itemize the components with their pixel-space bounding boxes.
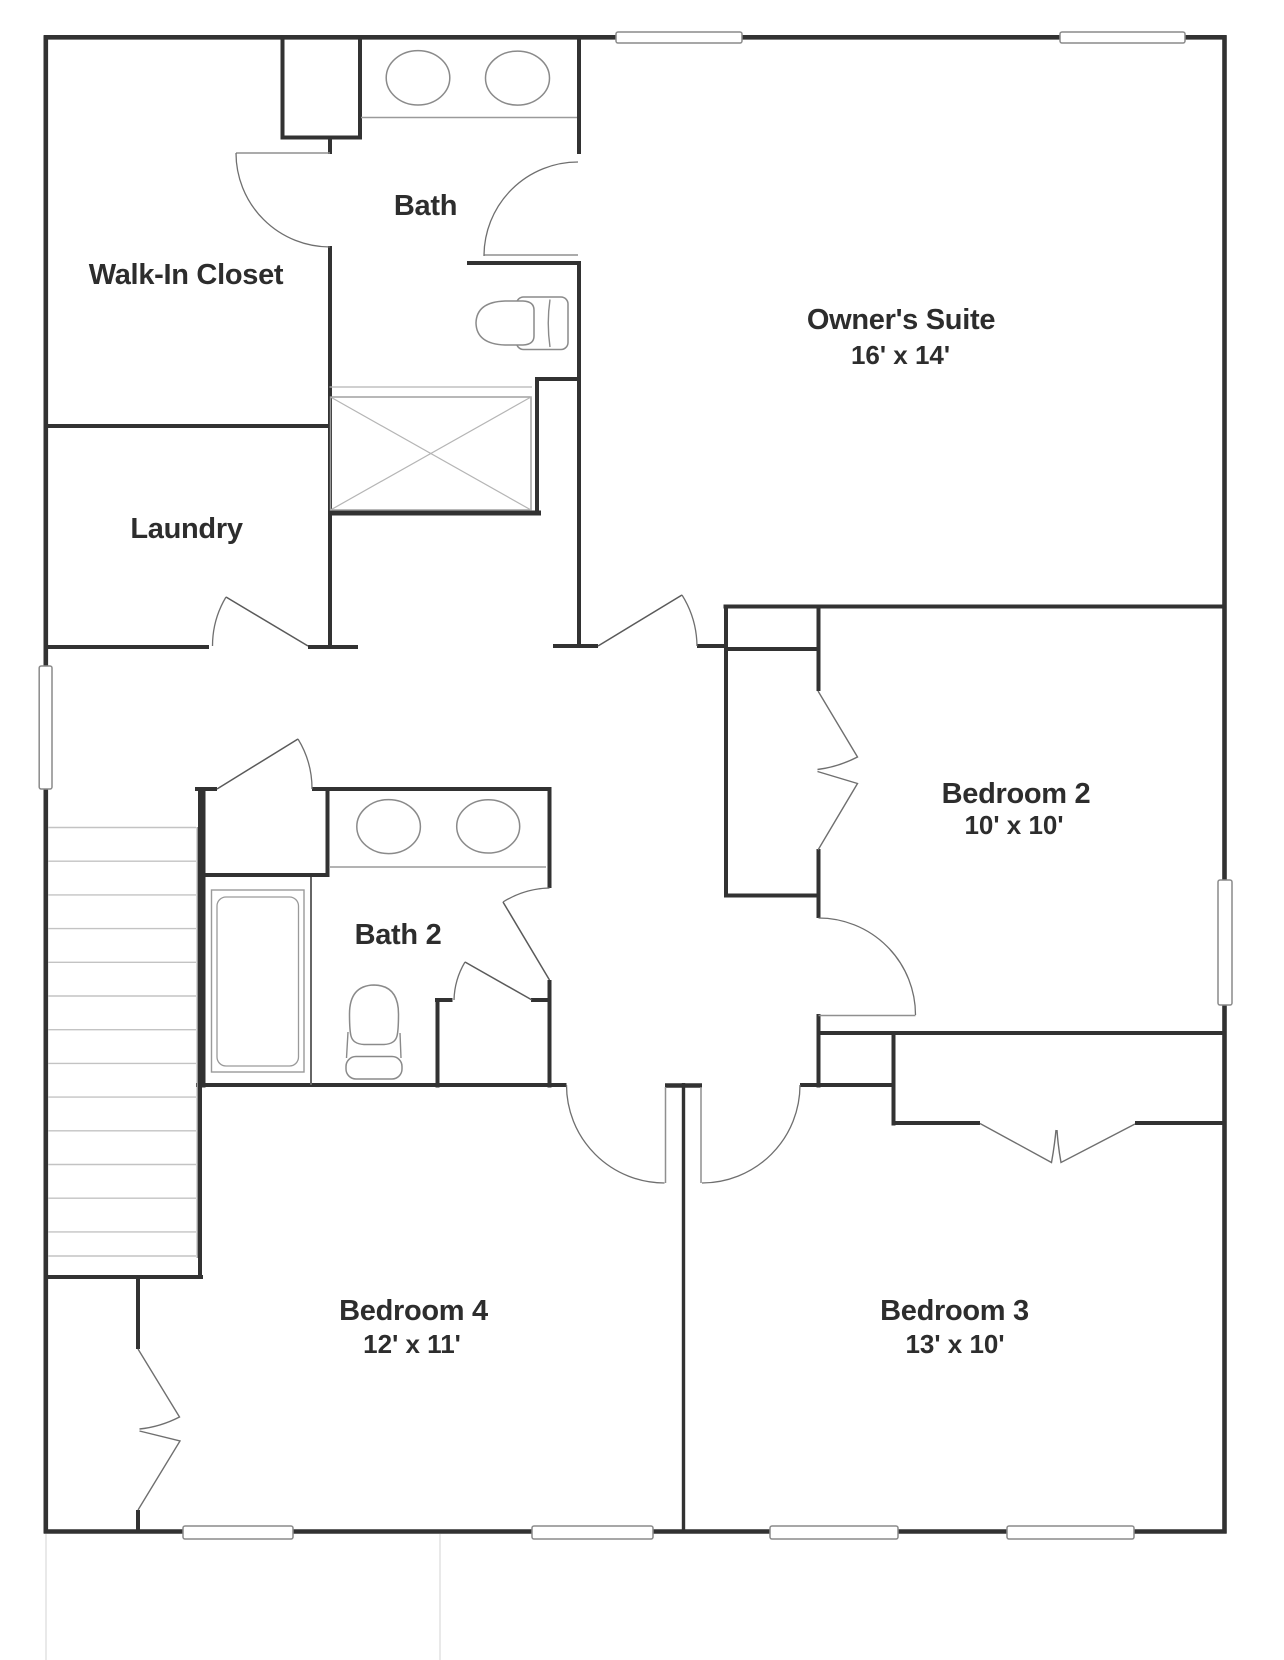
svg-text:10' x 10': 10' x 10' (964, 810, 1063, 840)
svg-text:Bedroom 3: Bedroom 3 (880, 1295, 1029, 1327)
svg-text:Laundry: Laundry (130, 513, 242, 545)
svg-text:13' x 10': 13' x 10' (905, 1329, 1004, 1359)
svg-text:Bedroom 2: Bedroom 2 (942, 778, 1091, 810)
svg-text:Walk-In Closet: Walk-In Closet (89, 259, 284, 291)
svg-text:12' x 11': 12' x 11' (363, 1329, 461, 1359)
svg-text:Owner's Suite: Owner's Suite (807, 304, 995, 336)
svg-text:Bedroom 4: Bedroom 4 (339, 1295, 488, 1327)
svg-text:16' x 14': 16' x 14' (851, 340, 950, 370)
svg-text:Bath: Bath (394, 190, 457, 222)
svg-text:Bath 2: Bath 2 (355, 919, 442, 951)
